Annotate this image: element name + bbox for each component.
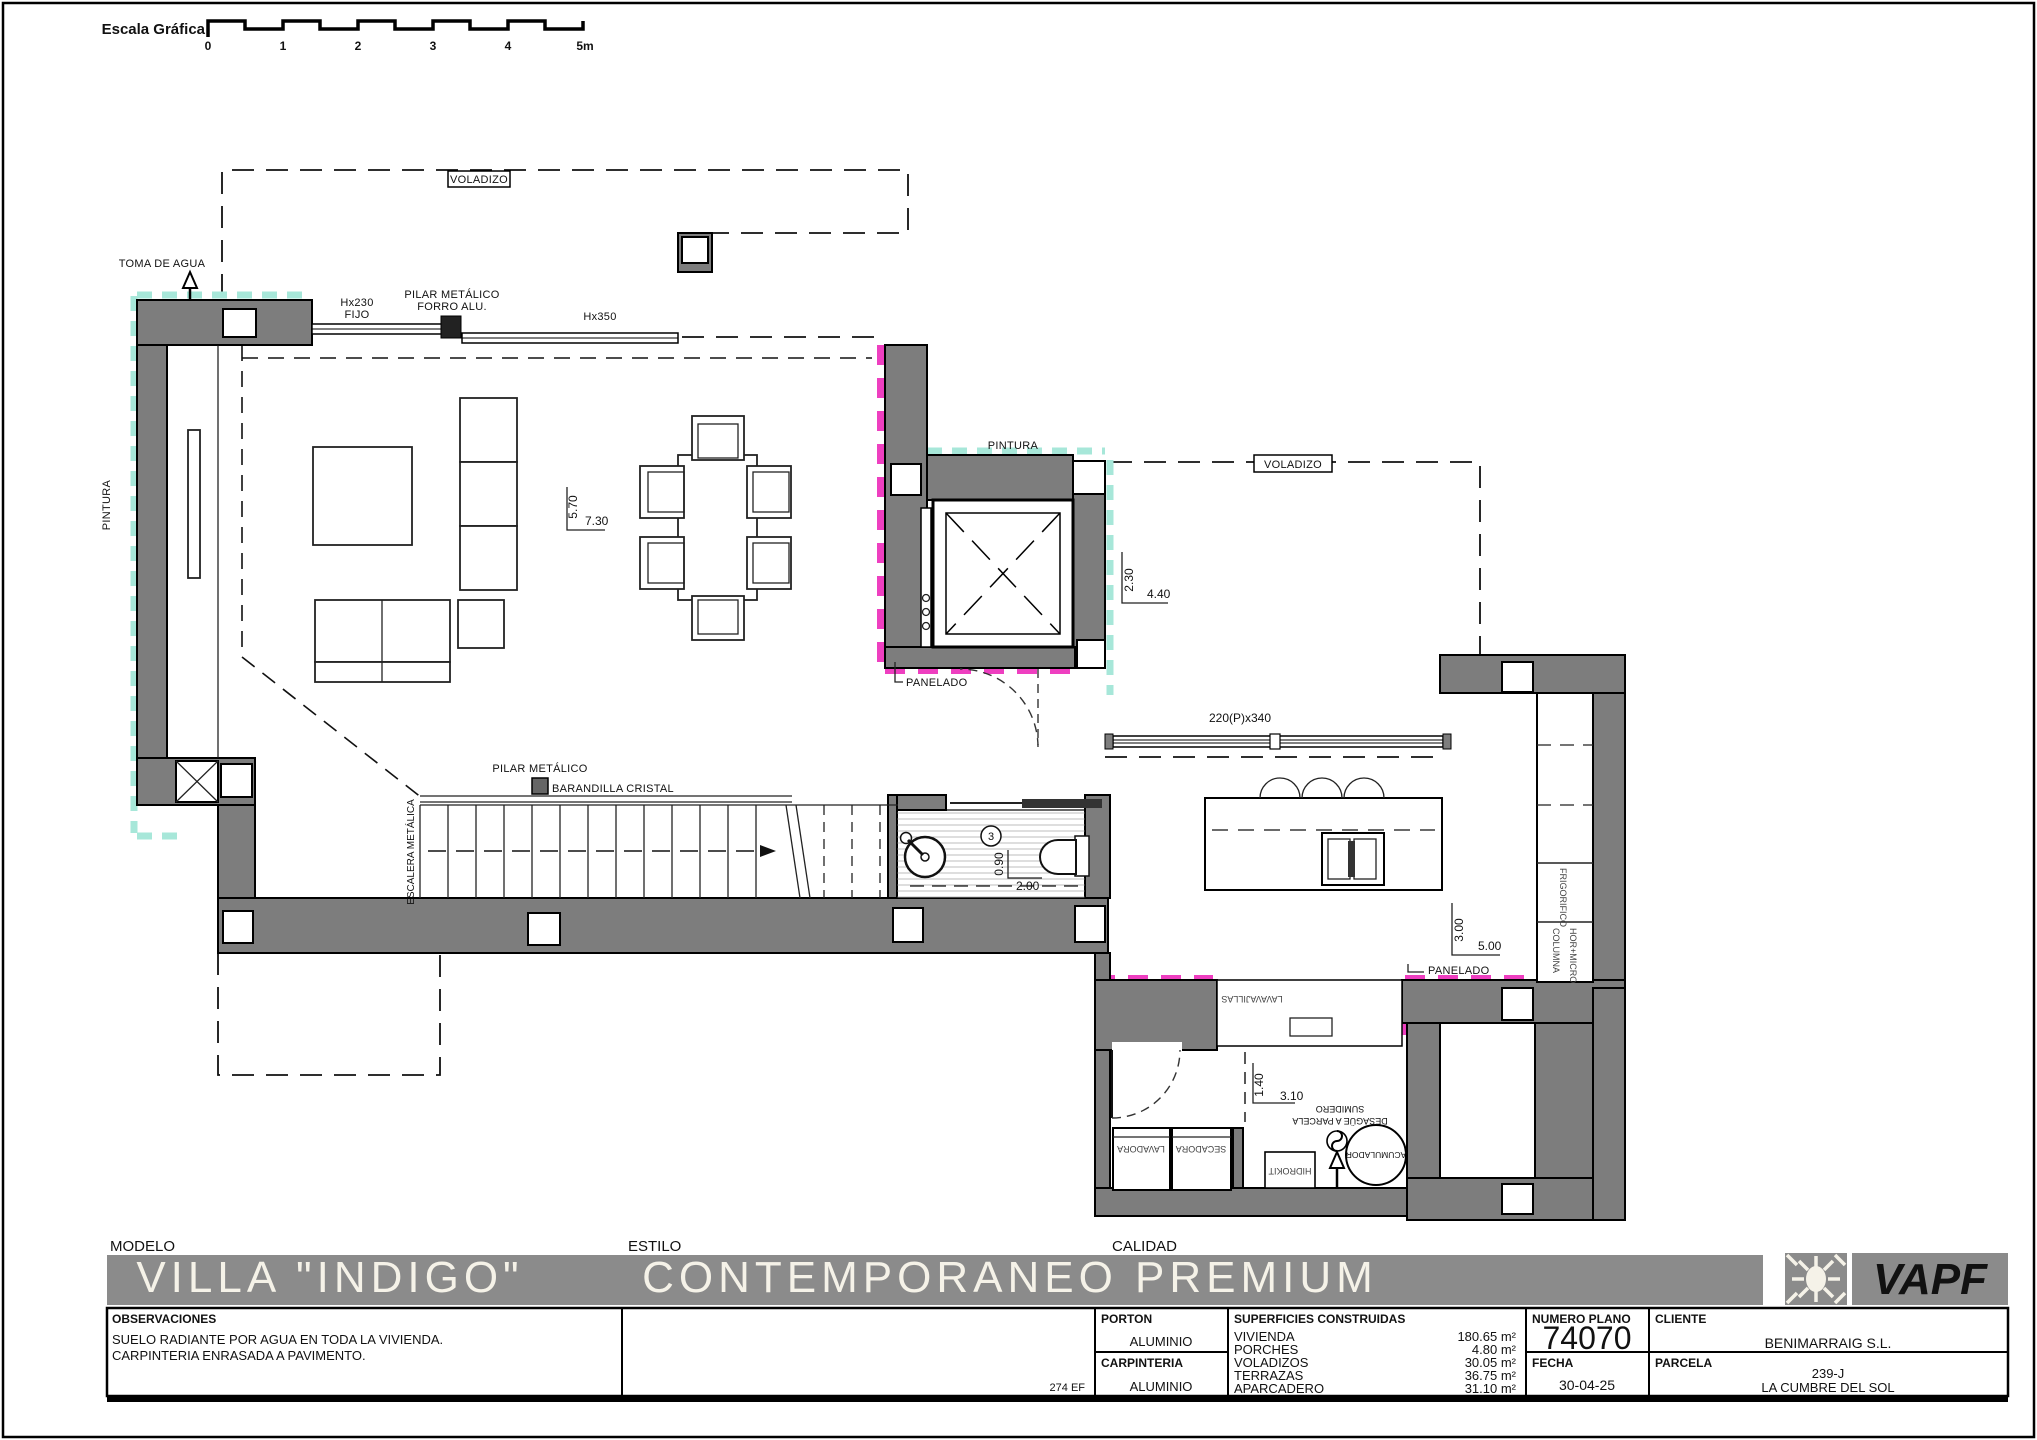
vapf-logo: VAPF	[1785, 1253, 2008, 1305]
scale-tick-5: 5m	[576, 39, 593, 53]
superficies-label: SUPERFICIES CONSTRUIDAS	[1234, 1312, 1405, 1326]
dim-kitchen-h: 5.00	[1478, 939, 1502, 953]
escalera-label: ESCALERA METÁLICA	[404, 799, 417, 905]
voladizo-right-label: VOLADIZO	[1264, 459, 1322, 471]
hidrokit-label: HIDROKIT	[1268, 1166, 1312, 1176]
panelado-center-label: PANELADO	[906, 677, 968, 689]
lavavajillas-label: LAVAVAJILLAS	[1221, 994, 1282, 1004]
ref-code: 274 EF	[1050, 1382, 1086, 1394]
pilar-forro-label-1: PILAR METÁLICO	[404, 288, 499, 301]
carpinteria-label: CARPINTERIA	[1101, 1356, 1183, 1370]
estilo-value: CONTEMPORANEO PREMIUM	[642, 1253, 1378, 1302]
sumidero-label-1: SUMIDERO	[1316, 1104, 1365, 1114]
utility-door-opening	[1112, 1042, 1182, 1062]
observaciones-label: OBSERVACIONES	[112, 1312, 216, 1326]
modelo-value: VILLA "INDIGO"	[136, 1253, 523, 1302]
bathroom: 3 0.90 2.00	[897, 799, 1102, 898]
window-h350-label: Hx350	[583, 311, 616, 323]
voladizo-top-label: VOLADIZO	[450, 174, 508, 186]
shaft-x-square	[176, 761, 218, 802]
parcela-label: PARCELA	[1655, 1356, 1712, 1370]
brand-wordmark: VAPF	[1873, 1255, 1988, 1304]
parcela-line2: LA CUMBRE DEL SOL	[1761, 1380, 1894, 1395]
window-fixed-label-1: Hx230	[340, 297, 373, 309]
fecha-value: 30-04-25	[1559, 1377, 1615, 1393]
observaciones-line2: CARPINTERIA ENRASADA A PAVIMENTO.	[112, 1348, 366, 1363]
hor-micro-label: HOR+MICRO	[1568, 928, 1578, 983]
columna-label: COLUMNA	[1551, 928, 1561, 973]
scale-bar-label: Escala Gráfica	[102, 21, 206, 38]
lavadora-label: LAVADORA	[1117, 1144, 1165, 1154]
window-fixed-label-2: FIJO	[344, 309, 369, 321]
scale-tick-2: 2	[355, 39, 362, 53]
dim-bath-v: 0.90	[992, 852, 1006, 876]
panelado-kitchen-label: PANELADO	[1428, 965, 1490, 977]
title-block: MODELO ESTILO CALIDAD VILLA "INDIGO" CON…	[107, 1238, 2008, 1402]
cliente-label: CLIENTE	[1655, 1312, 1706, 1326]
scale-tick-0: 0	[205, 39, 212, 53]
cliente-value: BENIMARRAIG S.L.	[1765, 1335, 1892, 1351]
carpinteria-value: ALUMINIO	[1130, 1379, 1193, 1394]
superficie-value: 31.10 m²	[1465, 1381, 1517, 1396]
toma-de-agua-label: TOMA DE AGUA	[119, 258, 206, 270]
dim-bath-h: 2.00	[1016, 879, 1040, 893]
scale-tick-4: 4	[505, 39, 512, 53]
sheet-border	[3, 3, 2034, 1437]
pintura-left-label: PINTURA	[101, 479, 113, 530]
barandilla-label: BARANDILLA CRISTAL	[552, 783, 674, 795]
numero-plano-value: 74070	[1543, 1320, 1632, 1356]
frigorifico-label: FRIGORIFICO	[1558, 868, 1568, 927]
pintura-center-label: PINTURA	[988, 440, 1039, 452]
bath-number-label: 3	[988, 831, 994, 843]
pilar-forro-label-2: FORRO ALU.	[417, 301, 487, 313]
floor-plan-svg: Escala Gráfica 0 1 2 3 4 5m VOLADIZO VOL…	[0, 0, 2037, 1440]
dim-living-h: 7.30	[585, 514, 609, 528]
dim-utility-h: 3.10	[1280, 1089, 1304, 1103]
window-sliding-label: 220(P)x340	[1209, 711, 1271, 725]
dim-terrace-v: 2.30	[1122, 568, 1136, 592]
pilar-metalico-label: PILAR METÁLICO	[492, 762, 587, 775]
scale-tick-1: 1	[280, 39, 287, 53]
porton-label: PORTON	[1101, 1312, 1152, 1326]
acumulador-label: ACUMULADOR	[1346, 1150, 1406, 1160]
plan-sheet: Escala Gráfica 0 1 2 3 4 5m VOLADIZO VOL…	[0, 0, 2037, 1440]
dim-utility-v: 1.40	[1252, 1073, 1266, 1097]
scale-tick-3: 3	[430, 39, 437, 53]
superficie-name: APARCADERO	[1234, 1381, 1324, 1396]
parcela-line1: 239-J	[1812, 1366, 1845, 1381]
sumidero-label-2: DESAGÜE A PARCELA	[1292, 1116, 1387, 1126]
fecha-label: FECHA	[1532, 1356, 1574, 1370]
dim-living-v: 5.70	[566, 495, 580, 519]
porton-value: ALUMINIO	[1130, 1334, 1193, 1349]
secadora-label: SECADORA	[1176, 1144, 1227, 1154]
dim-terrace-h: 4.40	[1147, 587, 1171, 601]
observaciones-line1: SUELO RADIANTE POR AGUA EN TODA LA VIVIE…	[112, 1332, 443, 1347]
dim-kitchen-v: 3.00	[1452, 918, 1466, 942]
